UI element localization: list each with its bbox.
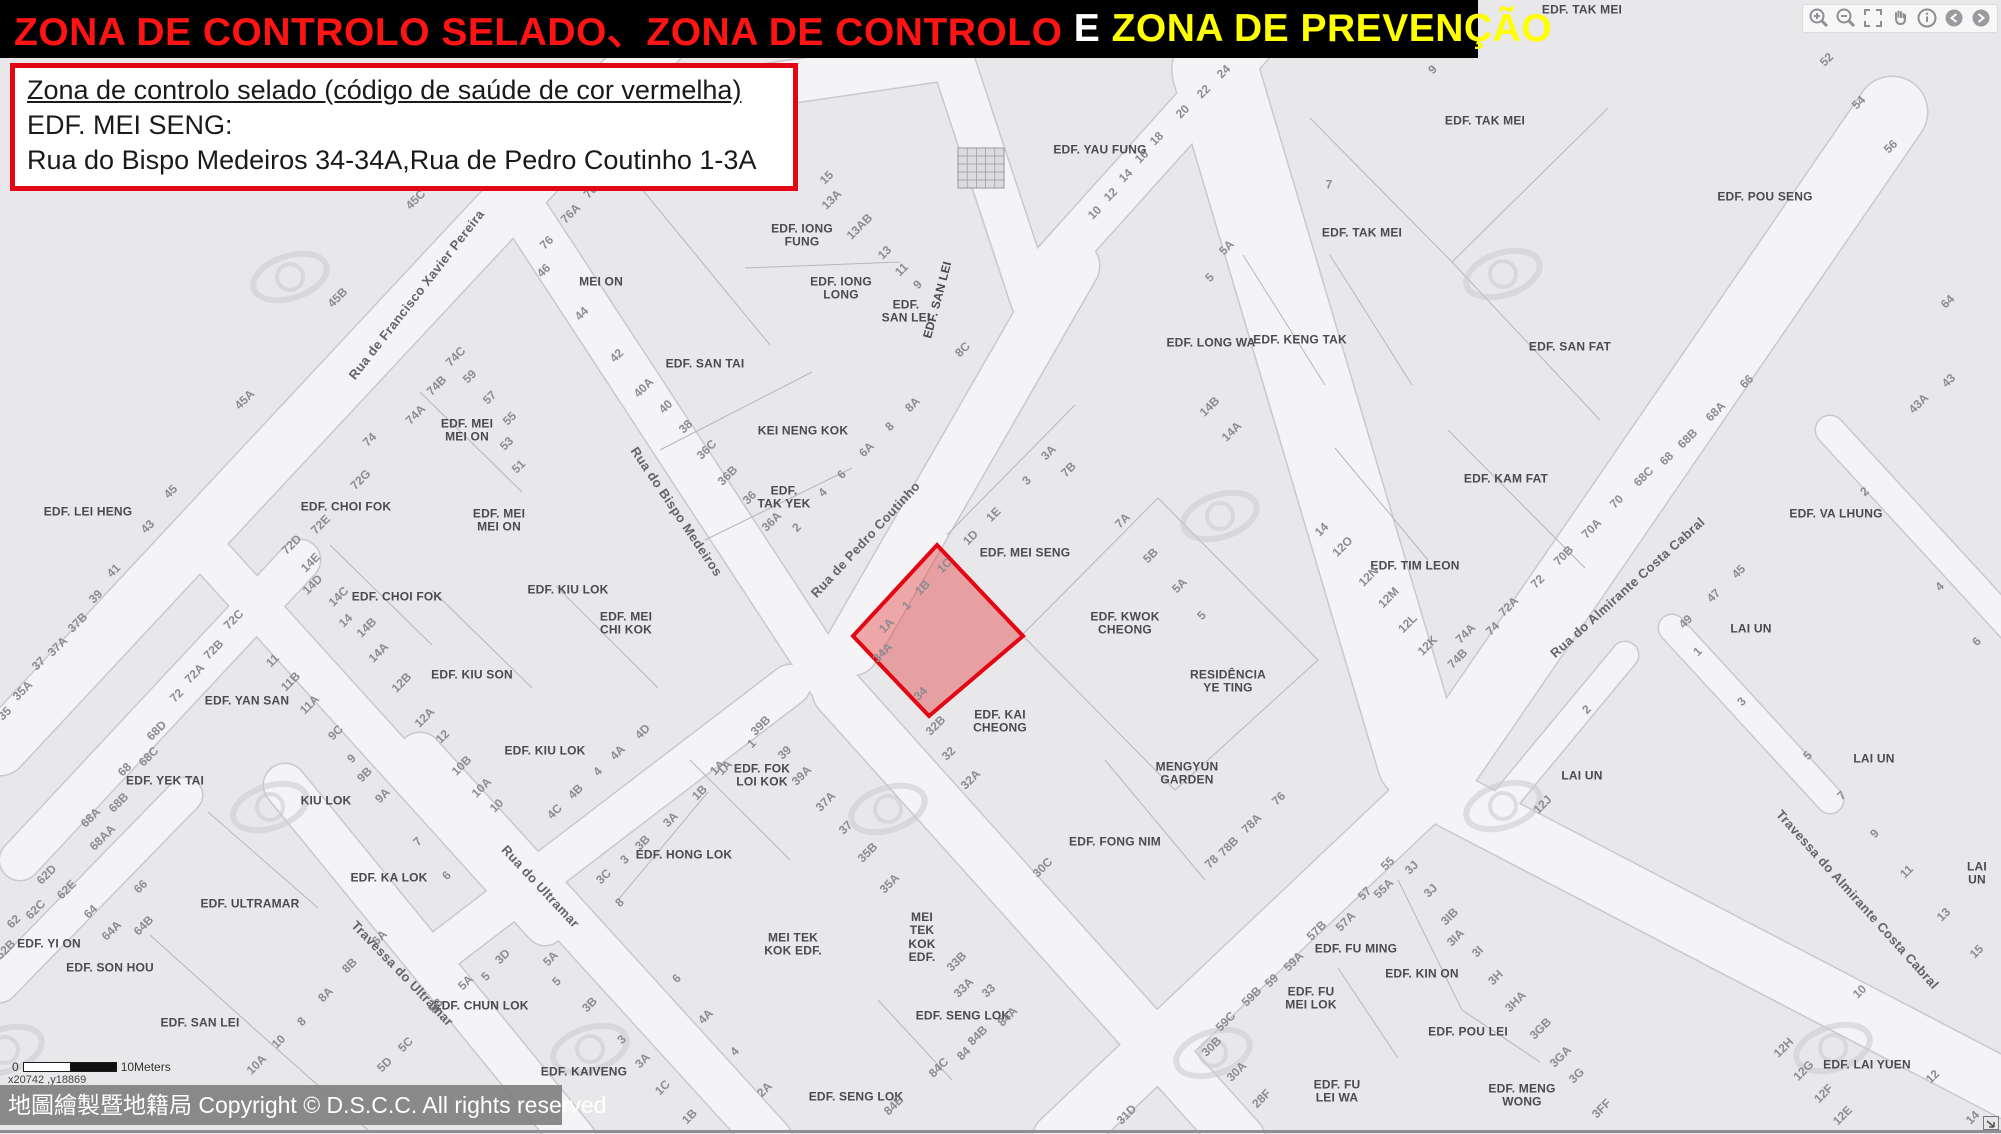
- dscc-watermark-icon: [1177, 484, 1262, 547]
- parcel-line: [420, 392, 522, 492]
- dscc-watermark-icon: [1207, 503, 1233, 529]
- parcel-line: [1338, 968, 1398, 1058]
- dscc-watermark-icon: [1200, 1040, 1226, 1066]
- parcel-line: [1448, 430, 1585, 568]
- pan-button[interactable]: [1887, 6, 1912, 31]
- dscc-watermark-icon: [1490, 261, 1516, 287]
- street-surface: [1215, 70, 1420, 760]
- full-extent-icon: [1861, 6, 1885, 30]
- identify-icon: [1915, 6, 1939, 30]
- next-view-button[interactable]: [1969, 6, 1994, 31]
- parcel-line: [432, 590, 532, 688]
- pan-icon: [1888, 6, 1912, 30]
- street-surface: [1428, 112, 1892, 788]
- zoom-in-icon: [1807, 6, 1831, 30]
- parcel-line: [1175, 660, 1318, 790]
- map-viewport[interactable]: MEI ONEDF. IONG FUNGEDF. IONG LONGEDF. S…: [0, 0, 2001, 1134]
- map-toolbar[interactable]: [1802, 4, 1998, 33]
- street-surface: [1830, 430, 2001, 628]
- zoom-in-button[interactable]: [1806, 6, 1831, 31]
- title-segment: ZONA DE CONTROLO SELADO、ZONA DE CONTROLO: [14, 1, 1062, 57]
- dscc-watermark-icon: [875, 796, 901, 822]
- scale-zero: 0: [12, 1060, 19, 1074]
- title-segment: ZONA DE PREVENÇÃO: [1112, 7, 1552, 51]
- parcel-line: [556, 586, 658, 688]
- copyright-bar: 地圖繪製暨地籍局 Copyright © D.S.C.C. All rights…: [0, 1085, 562, 1125]
- street-surface: [1428, 788, 2001, 1092]
- dscc-watermark-icon: [1820, 1035, 1846, 1061]
- street-surface: [468, 126, 838, 692]
- identify-button[interactable]: [1915, 6, 1940, 31]
- parcel-line: [1462, 1010, 1540, 1062]
- full-extent-button[interactable]: [1860, 6, 1885, 31]
- title-segment: E: [1062, 7, 1111, 51]
- parcel-line: [330, 545, 432, 645]
- previous-view-button[interactable]: [1942, 6, 1967, 31]
- info-building-name: EDF. MEI SENG:: [27, 108, 781, 143]
- next-view-icon: [1969, 6, 1993, 30]
- bottom-border: [0, 1130, 2001, 1133]
- parcel-line: [1022, 635, 1175, 790]
- parcel-line: [1022, 498, 1158, 635]
- hatched-building: [958, 148, 1004, 188]
- scale-bar-graphic: [23, 1062, 117, 1072]
- street-surface: [1672, 628, 1830, 800]
- parcel-line: [1452, 108, 1608, 262]
- parcel-line: [690, 760, 790, 860]
- parcel-line: [1398, 880, 1462, 1010]
- dscc-watermark-icon: [1460, 242, 1545, 305]
- dscc-watermark-icon: [547, 1017, 632, 1080]
- dscc-watermark-icon: [577, 1036, 603, 1062]
- info-address: Rua do Bispo Medeiros 34-34A,Rua de Pedr…: [27, 143, 781, 178]
- previous-view-icon: [1942, 6, 1966, 30]
- parcel-line: [878, 1000, 952, 1080]
- parcel-line: [745, 262, 900, 268]
- zoom-out-button[interactable]: [1833, 6, 1858, 31]
- dscc-watermark-icon: [247, 245, 332, 308]
- dscc-watermark-icon: [277, 264, 303, 290]
- scale-distance-label: 10Meters: [121, 1060, 171, 1074]
- parcel-line: [150, 935, 258, 1032]
- parcel-line: [1105, 760, 1205, 880]
- info-zone-heading: Zona de controlo selado (código de saúde…: [27, 73, 781, 108]
- resize-corner-icon[interactable]: [1983, 1116, 1999, 1130]
- parcel-line: [1310, 118, 1452, 262]
- sealed-zone-info-box: Zona de controlo selado (código de saúde…: [10, 63, 798, 191]
- dscc-watermark-icon: [1790, 1016, 1875, 1079]
- title-bar: ZONA DE CONTROLO SELADO、ZONA DE CONTROLO…: [0, 0, 1478, 58]
- zoom-out-icon: [1834, 6, 1858, 30]
- scale-bar: 0 10Meters: [12, 1060, 171, 1074]
